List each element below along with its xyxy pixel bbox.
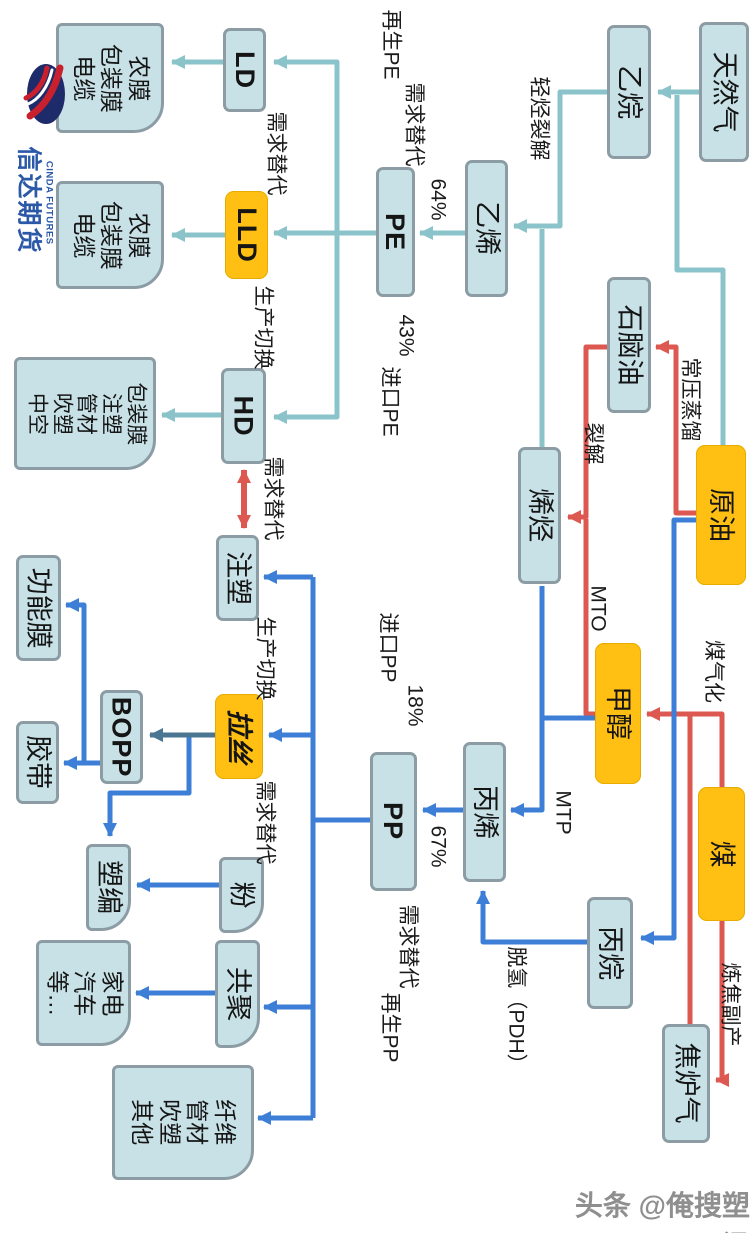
label-imported-pe: 进口PE <box>377 356 403 446</box>
node-injection-molding: 注塑 <box>216 535 259 621</box>
node-bopp: BOPP <box>100 690 143 784</box>
node-fiber-uses: 纤维 管材 吹塑 其他 <box>112 1065 254 1180</box>
label-atmospheric-distillation: 常压蒸馏 <box>677 345 703 453</box>
label-demand-substitution-hd: 需求替代 <box>260 451 286 545</box>
node-functional-film: 功能膜 <box>16 555 61 661</box>
node-propane: 丙烷 <box>587 897 633 1009</box>
label-demand-substitution-ld: 需求替代 <box>263 111 289 195</box>
label-67-percent: 67% <box>425 818 451 874</box>
node-coal: 煤 <box>698 787 745 921</box>
label-cracking: 裂解 <box>580 415 606 471</box>
cinda-logo-flame-icon <box>22 56 72 130</box>
node-film-uses-1: 农膜 包装膜 电缆 <box>56 23 164 133</box>
label-mto: MTO <box>585 562 611 654</box>
edge-pe-hd <box>274 233 337 417</box>
label-recycled-pe: 再生PE <box>378 2 404 86</box>
cinda-logo-chinese-name: 信达期货 <box>12 134 44 266</box>
edge-bopp-functionalfilm <box>66 605 84 763</box>
label-18-percent: 18% <box>402 680 428 730</box>
label-coal-gasification: 煤气化 <box>700 628 726 714</box>
edge-olefins-propylene <box>511 586 542 810</box>
red-edges <box>244 347 722 1080</box>
node-ethane: 乙烷 <box>607 25 651 159</box>
node-drawing: 拉丝 <box>215 694 263 779</box>
petrochemical-flowchart: 天然气 乙烷 乙烯 PE 石脑油 烯烃 原油 甲醇 煤 丙烯 PP 丙烷 焦炉气… <box>0 0 753 1233</box>
node-methanol: 甲醇 <box>595 643 641 784</box>
cinda-logo-english-name: CINDA FUTURES <box>41 136 57 270</box>
label-coking-byproduct: 炼焦副产 <box>717 948 743 1060</box>
node-plastic-weaving: 塑编 <box>86 844 131 931</box>
node-copolymer: 共聚 <box>215 940 260 1048</box>
node-propylene: 丙烯 <box>463 742 506 882</box>
label-pdh-dehydrogenation: 脱氢（PDH） <box>502 938 530 1083</box>
label-production-switch-injection: 生产切换 <box>252 614 278 702</box>
label-43-percent: 43% <box>393 309 419 361</box>
node-olefins: 烯烃 <box>518 447 561 584</box>
node-hd-uses: 包装膜 注塑 管材 吹塑 中空 <box>14 357 156 470</box>
node-lld: LLD <box>225 191 268 279</box>
node-powder: 粉 <box>219 857 264 933</box>
edge-propane-propylene-pdh <box>483 891 588 942</box>
node-hd: HD <box>221 368 266 464</box>
label-demand-substitution-drawing: 需求替代 <box>252 779 278 865</box>
node-film-uses-2: 农膜 包装膜 电缆 <box>56 181 164 289</box>
edge-coal-methanol <box>647 714 722 788</box>
node-ld: LD <box>223 28 266 112</box>
label-light-hydrocarbon-cracking: 轻烃裂解 <box>526 64 552 172</box>
node-natural-gas: 天然气 <box>699 22 749 162</box>
node-appliance-uses: 家电 汽车 等… <box>36 940 131 1046</box>
node-pp: PP <box>370 752 417 891</box>
node-coke-oven-gas: 焦炉气 <box>662 1024 710 1143</box>
label-production-switch-lld: 生产切换 <box>250 285 276 369</box>
node-tape: 胶带 <box>16 721 59 804</box>
toutiao-watermark: 头条 @俺搜塑讯 <box>560 1184 750 1233</box>
label-mtp: MTP <box>550 766 576 858</box>
label-recycled-pp: 再生PP <box>377 986 403 1068</box>
label-64-percent: 64% <box>425 168 451 230</box>
label-demand-substitution-pe: 需求替代 <box>401 84 427 164</box>
node-ethylene: 乙烯 <box>465 160 508 297</box>
label-imported-pp: 进口PP <box>375 601 401 693</box>
node-naphtha: 石脑油 <box>607 277 651 413</box>
node-pe: PE <box>376 167 415 297</box>
node-crude-oil: 原油 <box>696 445 746 585</box>
label-demand-substitution-pp: 需求替代 <box>395 901 421 991</box>
